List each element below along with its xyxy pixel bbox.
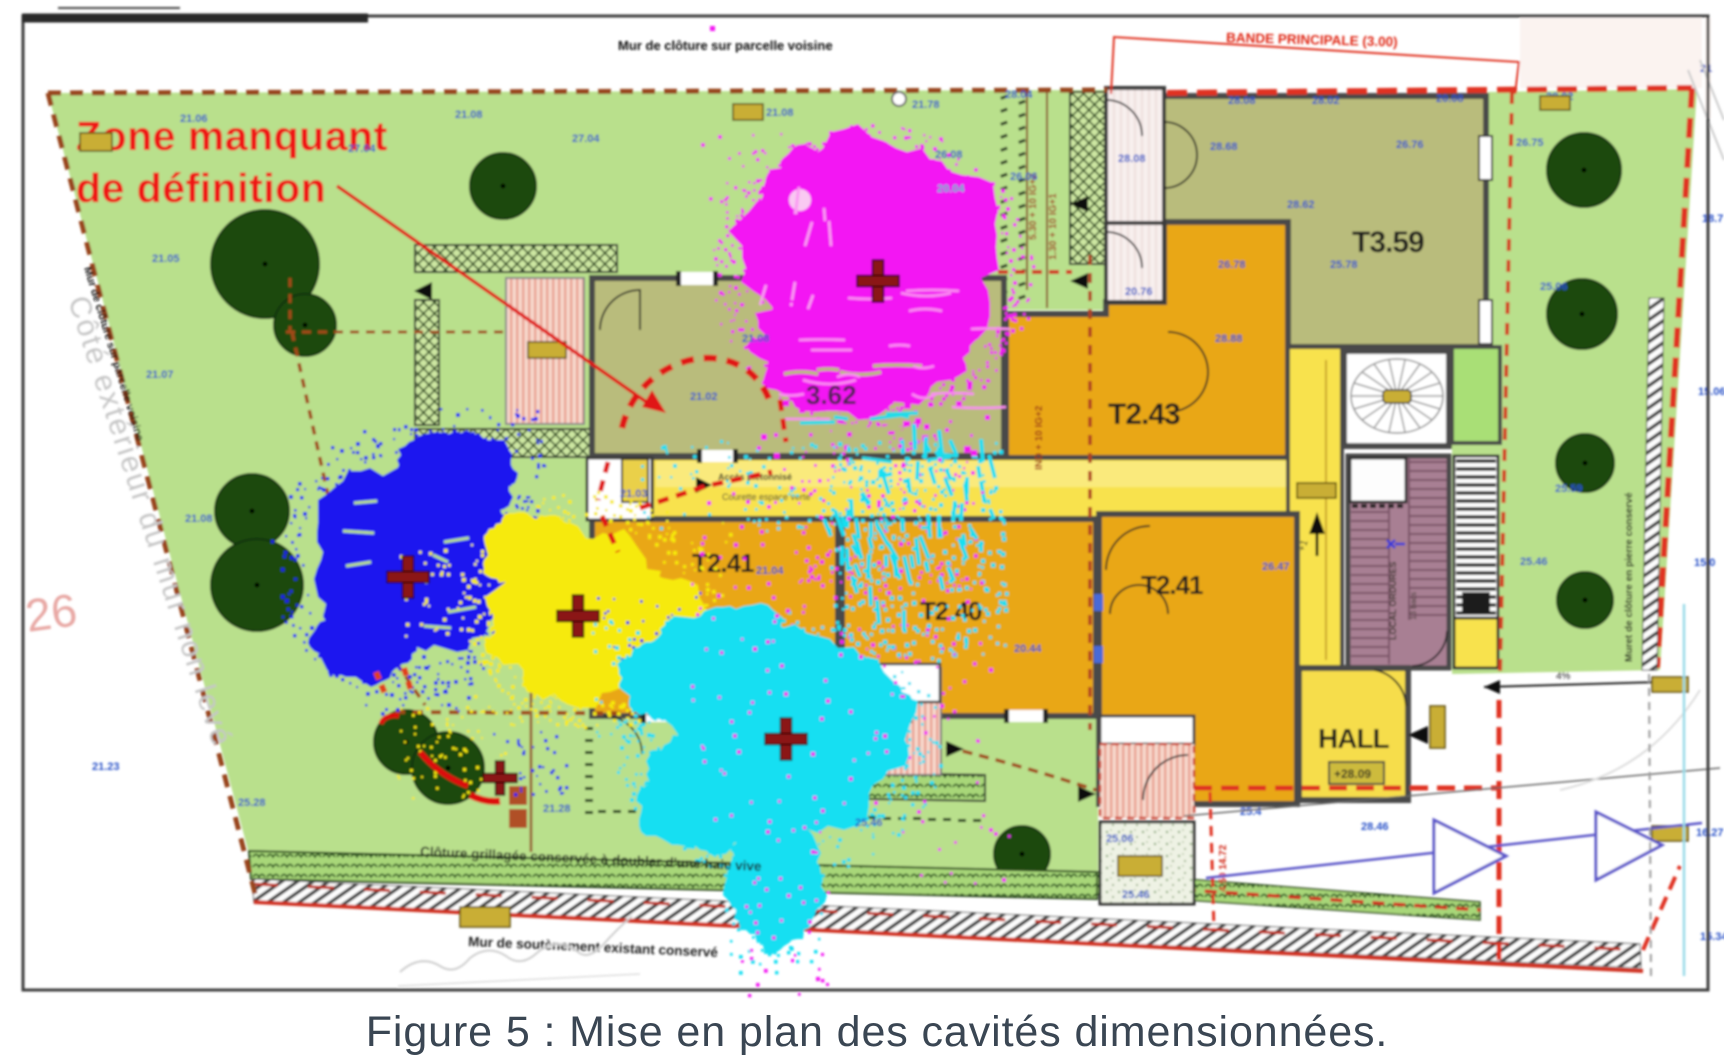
svg-text:21.78: 21.78 xyxy=(912,99,940,111)
svg-text:T3.59: T3.59 xyxy=(1352,226,1424,259)
svg-text:Zone manquant: Zone manquant xyxy=(76,113,388,159)
svg-text:25.46: 25.46 xyxy=(1122,889,1150,901)
svg-text:de définition: de définition xyxy=(76,165,326,211)
svg-text:21.08: 21.08 xyxy=(455,109,483,121)
svg-text:28.62: 28.62 xyxy=(1287,199,1315,211)
svg-text:21.23: 21.23 xyxy=(92,761,120,773)
svg-text:27.04: 27.04 xyxy=(572,133,600,145)
svg-text:21.08: 21.08 xyxy=(742,333,770,345)
svg-text:26.78: 26.78 xyxy=(1218,259,1246,271)
svg-text:IND + 10 IG+2: IND + 10 IG+2 xyxy=(1034,405,1045,470)
svg-text:28.46: 28.46 xyxy=(1361,821,1389,833)
svg-text:28.02: 28.02 xyxy=(1312,95,1340,107)
svg-text:25.06: 25.06 xyxy=(1540,281,1568,293)
svg-text:20.08: 20.08 xyxy=(1436,93,1464,105)
svg-text:3.62: 3.62 xyxy=(806,380,857,410)
svg-text:20.04: 20.04 xyxy=(937,183,965,195)
svg-text:18.7: 18.7 xyxy=(1702,213,1723,225)
svg-text:1.30 + 10 IG+1: 1.30 + 10 IG+1 xyxy=(1048,193,1059,260)
svg-text:21.02: 21.02 xyxy=(690,391,718,403)
svg-text:13 bacs: 13 bacs xyxy=(1409,592,1418,620)
svg-text:28.88: 28.88 xyxy=(1215,333,1243,345)
svg-text:28.08: 28.08 xyxy=(1118,153,1146,165)
svg-text:15.0: 15.0 xyxy=(1694,557,1715,569)
svg-text:15.06: 15.06 xyxy=(1698,386,1724,398)
svg-text:25.78: 25.78 xyxy=(1330,259,1358,271)
svg-text:16.27: 16.27 xyxy=(1696,827,1724,839)
svg-text:21.06: 21.06 xyxy=(180,113,208,125)
svg-text:25.46: 25.46 xyxy=(855,817,883,829)
svg-text:21.28: 21.28 xyxy=(543,803,571,815)
svg-text:26.06: 26.06 xyxy=(1010,171,1038,183)
svg-text:HALL: HALL xyxy=(1318,723,1390,754)
svg-text:21.05: 21.05 xyxy=(152,253,180,265)
svg-text:25.06: 25.06 xyxy=(1106,833,1134,845)
svg-text:21.08: 21.08 xyxy=(766,107,794,119)
svg-text:28.08: 28.08 xyxy=(1228,95,1256,107)
svg-text:27.04: 27.04 xyxy=(348,143,376,155)
svg-text:25.28: 25.28 xyxy=(238,797,266,809)
svg-text:21.03: 21.03 xyxy=(620,488,648,500)
svg-text:20.44: 20.44 xyxy=(1014,643,1042,655)
svg-text:T2.43: T2.43 xyxy=(1108,398,1180,431)
svg-text:26: 26 xyxy=(22,583,80,642)
svg-text:26.47: 26.47 xyxy=(1262,561,1290,573)
svg-text:15.34: 15.34 xyxy=(1700,931,1724,943)
svg-text:28.04: 28.04 xyxy=(1005,89,1033,101)
svg-text:4.50 14.72: 4.50 14.72 xyxy=(1218,844,1229,892)
svg-text:25.46: 25.46 xyxy=(1520,556,1548,568)
svg-text:26.75: 26.75 xyxy=(1516,137,1544,149)
svg-text:20.76: 20.76 xyxy=(1125,286,1153,298)
svg-text:26.76: 26.76 xyxy=(1396,139,1424,151)
svg-text:25.4: 25.4 xyxy=(1240,806,1262,818)
svg-text:LOCAL ORDURES: LOCAL ORDURES xyxy=(1388,562,1398,640)
svg-text:25.59: 25.59 xyxy=(1555,483,1583,495)
svg-text:Muret de clôture en pierre con: Muret de clôture en pierre conservé xyxy=(1624,492,1635,662)
svg-text:T2.41: T2.41 xyxy=(1141,570,1203,600)
svg-text:21.04: 21.04 xyxy=(756,565,784,577)
svg-text:+28.09: +28.09 xyxy=(1334,767,1371,781)
svg-text:4%: 4% xyxy=(1556,671,1571,682)
svg-text:28.68: 28.68 xyxy=(1210,141,1238,153)
svg-text:26.08: 26.08 xyxy=(935,149,963,161)
svg-text:21.08: 21.08 xyxy=(185,513,213,525)
svg-text:Mur de clôture sur parcelle vo: Mur de clôture sur parcelle voisine xyxy=(618,38,833,53)
svg-text:21.07: 21.07 xyxy=(146,369,174,381)
svg-text:Figure 5 : Mise en plan des ca: Figure 5 : Mise en plan des cavités dime… xyxy=(366,1008,1389,1056)
